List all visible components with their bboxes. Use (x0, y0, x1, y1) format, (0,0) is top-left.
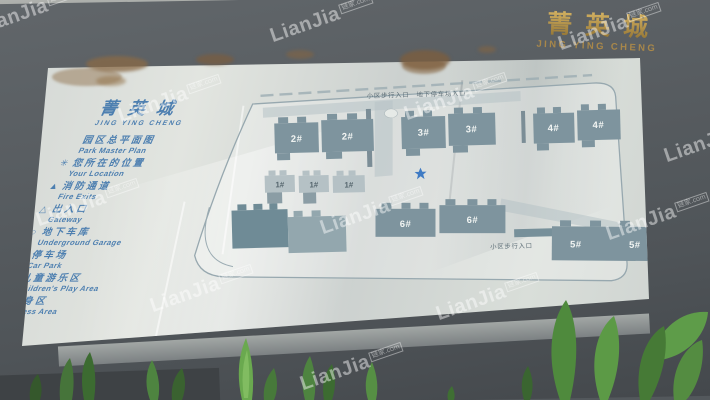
building-annex (514, 228, 552, 237)
leaf (366, 362, 378, 400)
building-label: 1# (344, 180, 354, 189)
leaf (60, 358, 74, 400)
panel-title-chinese: 菁英城 (97, 94, 298, 119)
legend-item-gateway: △ 出入口 Gateway (45, 204, 249, 227)
foreground-plants (0, 280, 710, 400)
building-6a: 6# (375, 203, 435, 237)
leaf (146, 360, 159, 400)
building-6b: 6# (439, 199, 505, 233)
leaf (302, 356, 315, 400)
leaf (264, 368, 277, 400)
building-label: 1# (275, 180, 285, 189)
leaf (323, 364, 335, 400)
building-label: 5# (629, 240, 641, 251)
rust-stain (196, 54, 234, 65)
legend-label-cn: 出入口 (50, 204, 249, 215)
large-leaf (551, 300, 576, 400)
building-annex (303, 192, 316, 203)
legend-label-cn: 停车场 (30, 250, 229, 261)
legend-label-en: Underground Garage (35, 238, 233, 248)
legend-item-your-location: ✳ 您所在的位置 Your Location (65, 158, 269, 181)
legend-subtitle: 园区总平面图 Park Master Plan (76, 135, 280, 158)
vertical-label-bar (521, 111, 526, 143)
rust-stain (96, 76, 126, 86)
legend-label-en: Fire Exits (56, 192, 254, 202)
building-label: 2# (291, 134, 303, 145)
building-label: 6# (467, 215, 479, 226)
rust-stain (86, 56, 148, 72)
building-label: 4# (592, 120, 604, 131)
rust-stain (286, 50, 314, 59)
leaf (30, 374, 42, 400)
sign-brand-plate: 菁英城 JING YING CHENG (499, 2, 696, 55)
leaf (172, 368, 185, 400)
legend-subtitle-en: Park Master Plan (76, 146, 274, 156)
building-label: 4# (548, 123, 560, 134)
panel-title-english: JING YING CHENG (93, 120, 286, 127)
rust-stain (400, 50, 450, 70)
legend-label-en: Your Location (66, 169, 264, 179)
legend-item-underground-garage: ○ 地下车库 Underground Garage (35, 227, 239, 250)
building-annex (267, 192, 282, 203)
leaf (522, 366, 533, 400)
large-leaf (638, 326, 665, 400)
rust-stain (478, 46, 496, 53)
legend-subtitle-cn: 园区总平面图 (81, 135, 280, 146)
leaf (448, 386, 455, 400)
legend-label-cn: 地下车库 (40, 227, 239, 238)
legend-label-en: Gateway (46, 215, 244, 225)
large-leaf (594, 316, 619, 400)
community-map-sign-photo: 菁英城 JING YING CHENG 菁英城 JING YING CHENG … (0, 0, 710, 400)
legend-label-cn: 您所在的位置 (71, 158, 270, 169)
legend-label-en: Car Park (25, 261, 223, 271)
legend-item-fire-exits: ▲ 消防通道 Fire Exits (55, 181, 259, 204)
legend-item-car-park: ○ 停车场 Car Park (24, 250, 228, 273)
building-label: 3# (466, 124, 478, 135)
legend-label-cn: 消防通道 (60, 181, 259, 192)
building-label: 5# (570, 239, 582, 250)
building-label: 3# (418, 127, 430, 138)
leaf (82, 352, 95, 400)
building-label: 2# (342, 131, 354, 142)
building-label: 6# (400, 219, 412, 230)
building-label: 1# (309, 180, 319, 189)
roundabout (384, 109, 397, 118)
